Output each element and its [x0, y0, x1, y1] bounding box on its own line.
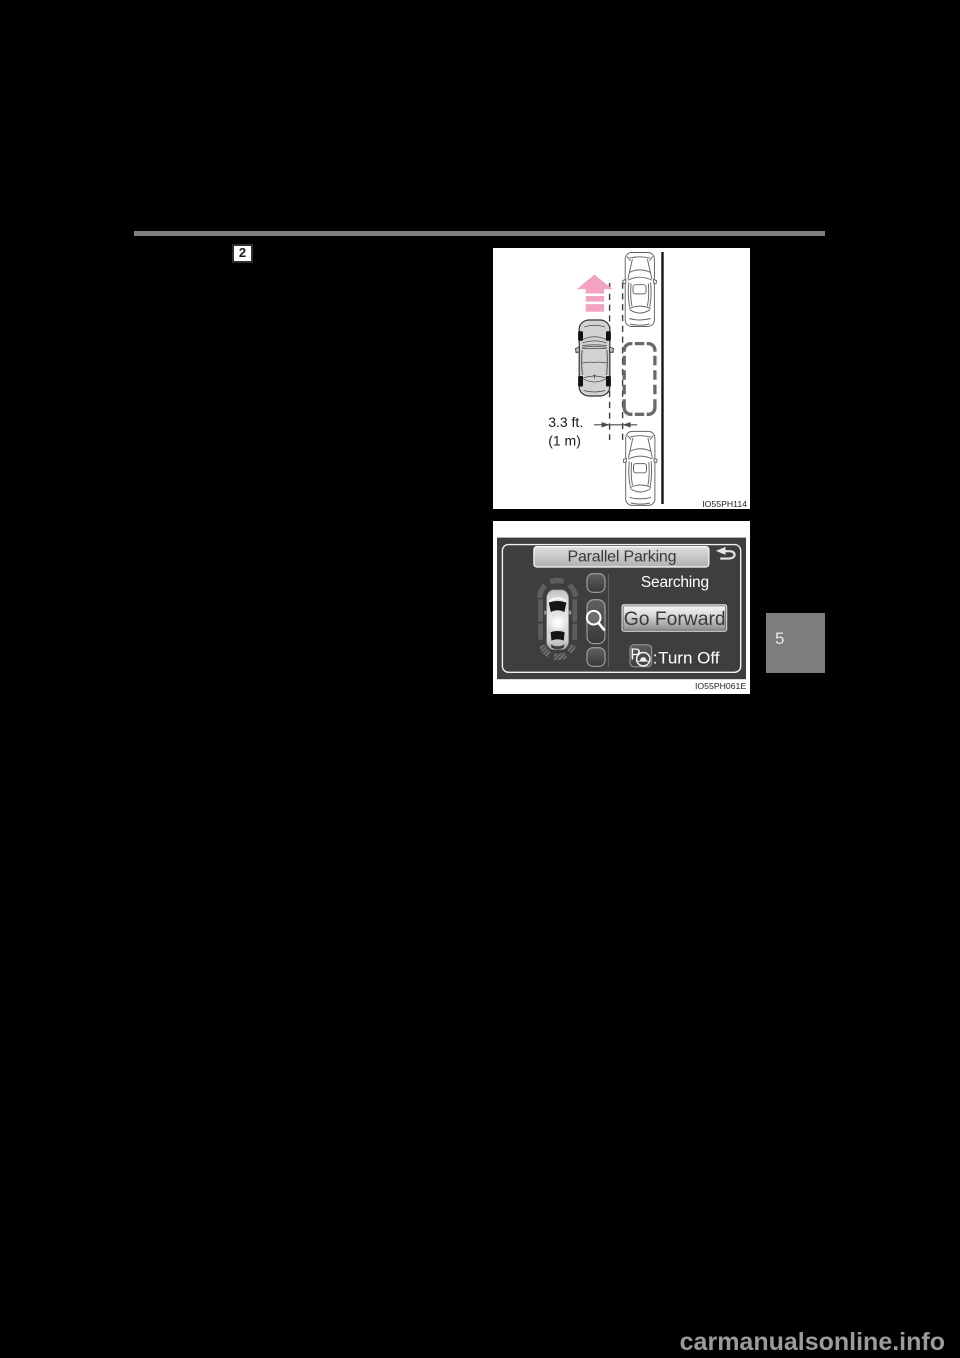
- svg-text:IO55PH061E: IO55PH061E: [695, 681, 746, 691]
- svg-text:IO55PH114: IO55PH114: [702, 499, 747, 509]
- svg-text:3.3 ft.: 3.3 ft.: [548, 414, 583, 430]
- svg-text::: :: [653, 648, 658, 667]
- svg-text:Parallel Parking: Parallel Parking: [567, 548, 676, 565]
- svg-text:(1 m): (1 m): [548, 432, 581, 448]
- svg-text:Searching: Searching: [641, 574, 709, 591]
- svg-text:Go Forward: Go Forward: [624, 609, 726, 630]
- svg-text:Turn Off: Turn Off: [658, 648, 720, 667]
